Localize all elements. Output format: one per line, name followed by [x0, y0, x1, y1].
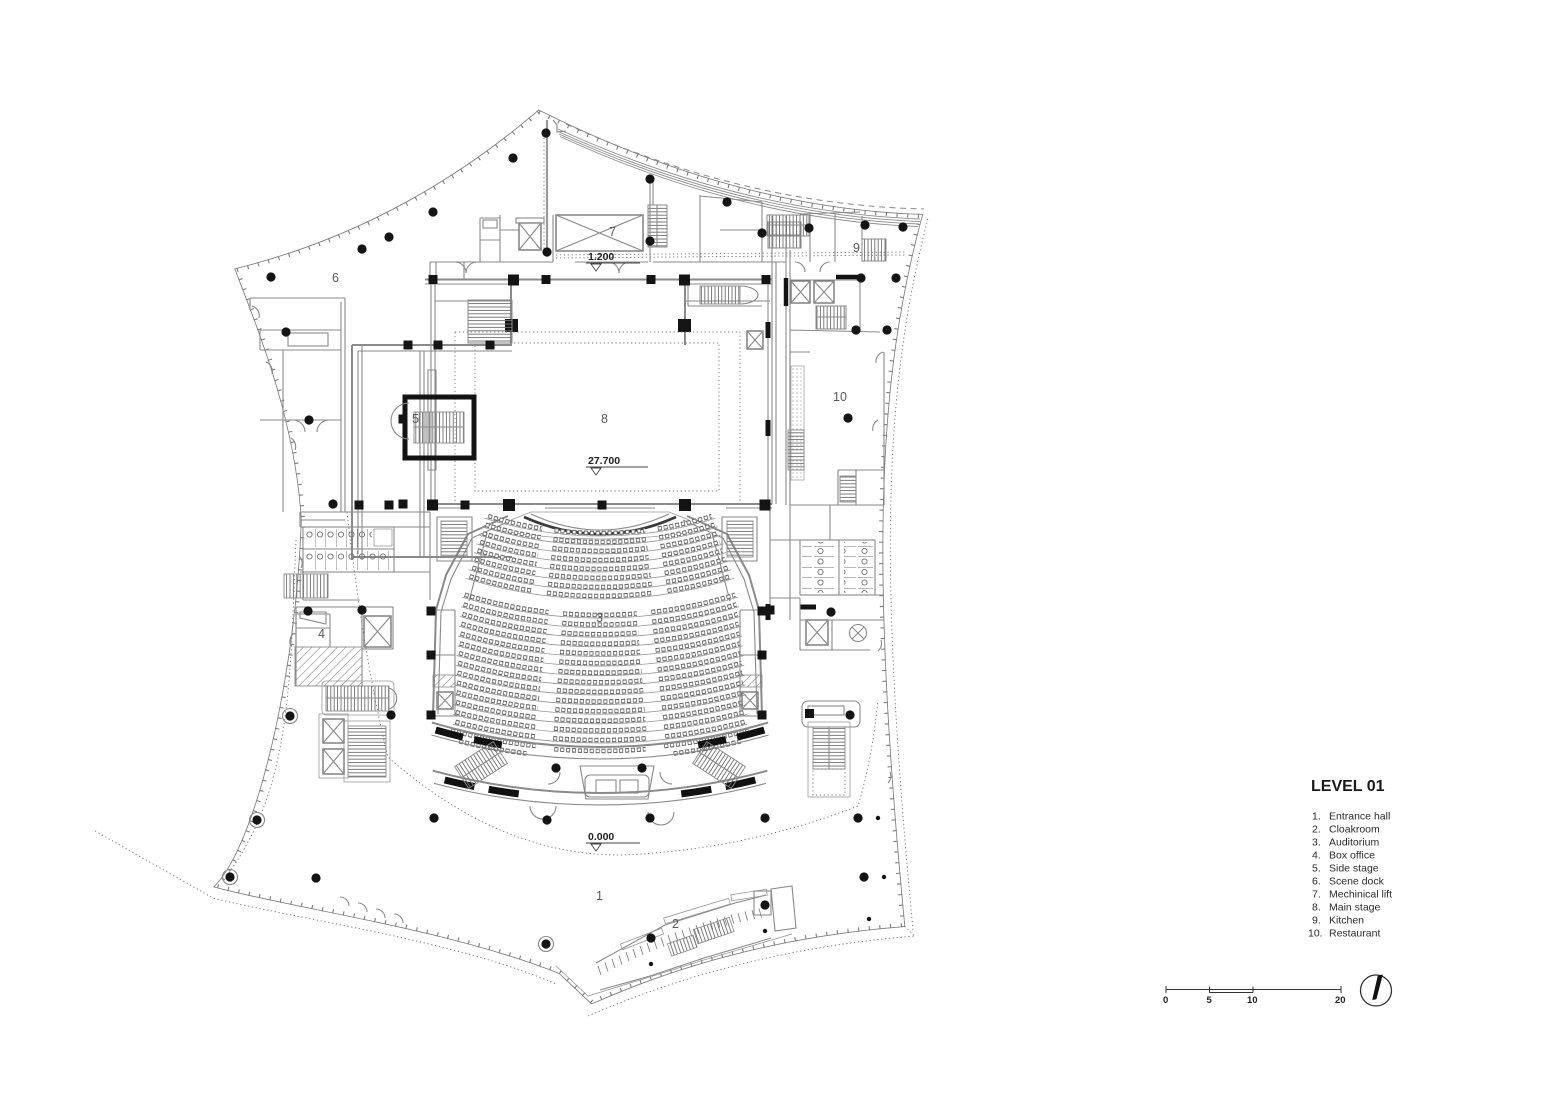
svg-text:Auditorium: Auditorium — [1329, 837, 1379, 849]
svg-text:9.: 9. — [1312, 915, 1321, 927]
svg-text:6.: 6. — [1312, 876, 1321, 888]
svg-text:2: 2 — [672, 917, 679, 931]
svg-text:6: 6 — [332, 271, 339, 285]
svg-text:Box office: Box office — [1329, 850, 1375, 862]
svg-text:Kitchen: Kitchen — [1329, 915, 1364, 927]
svg-text:5: 5 — [412, 412, 419, 426]
svg-text:1.200: 1.200 — [588, 251, 614, 263]
svg-text:8: 8 — [601, 412, 608, 426]
svg-text:Cloakroom: Cloakroom — [1329, 824, 1380, 836]
svg-text:10.: 10. — [1308, 928, 1323, 940]
svg-text:1: 1 — [596, 889, 603, 903]
svg-text:4: 4 — [318, 627, 325, 641]
svg-text:Mechinical lift: Mechinical lift — [1329, 889, 1392, 901]
svg-text:20: 20 — [1335, 995, 1346, 1006]
svg-text:Scene dock: Scene dock — [1329, 876, 1385, 888]
svg-text:LEVEL 01: LEVEL 01 — [1311, 778, 1385, 795]
svg-text:8.: 8. — [1312, 902, 1321, 914]
svg-text:7: 7 — [609, 225, 616, 239]
svg-text:0.000: 0.000 — [588, 831, 614, 843]
svg-text:0: 0 — [1163, 995, 1168, 1006]
svg-text:10: 10 — [833, 390, 847, 404]
svg-text:Main stage: Main stage — [1329, 902, 1381, 914]
svg-text:3: 3 — [596, 611, 603, 625]
svg-text:Entrance hall: Entrance hall — [1329, 811, 1390, 823]
svg-text:5: 5 — [1207, 995, 1213, 1006]
svg-text:4.: 4. — [1312, 850, 1321, 862]
svg-text:3.: 3. — [1312, 837, 1321, 849]
svg-text:10: 10 — [1247, 995, 1258, 1006]
svg-text:9: 9 — [853, 241, 860, 255]
svg-text:Side stage: Side stage — [1329, 863, 1379, 875]
svg-text:1.: 1. — [1312, 811, 1321, 823]
svg-text:5.: 5. — [1312, 863, 1321, 875]
svg-text:2.: 2. — [1312, 824, 1321, 836]
svg-text:27.700: 27.700 — [588, 455, 620, 467]
svg-text:7.: 7. — [1312, 889, 1321, 901]
svg-text:Restaurant: Restaurant — [1329, 928, 1380, 940]
